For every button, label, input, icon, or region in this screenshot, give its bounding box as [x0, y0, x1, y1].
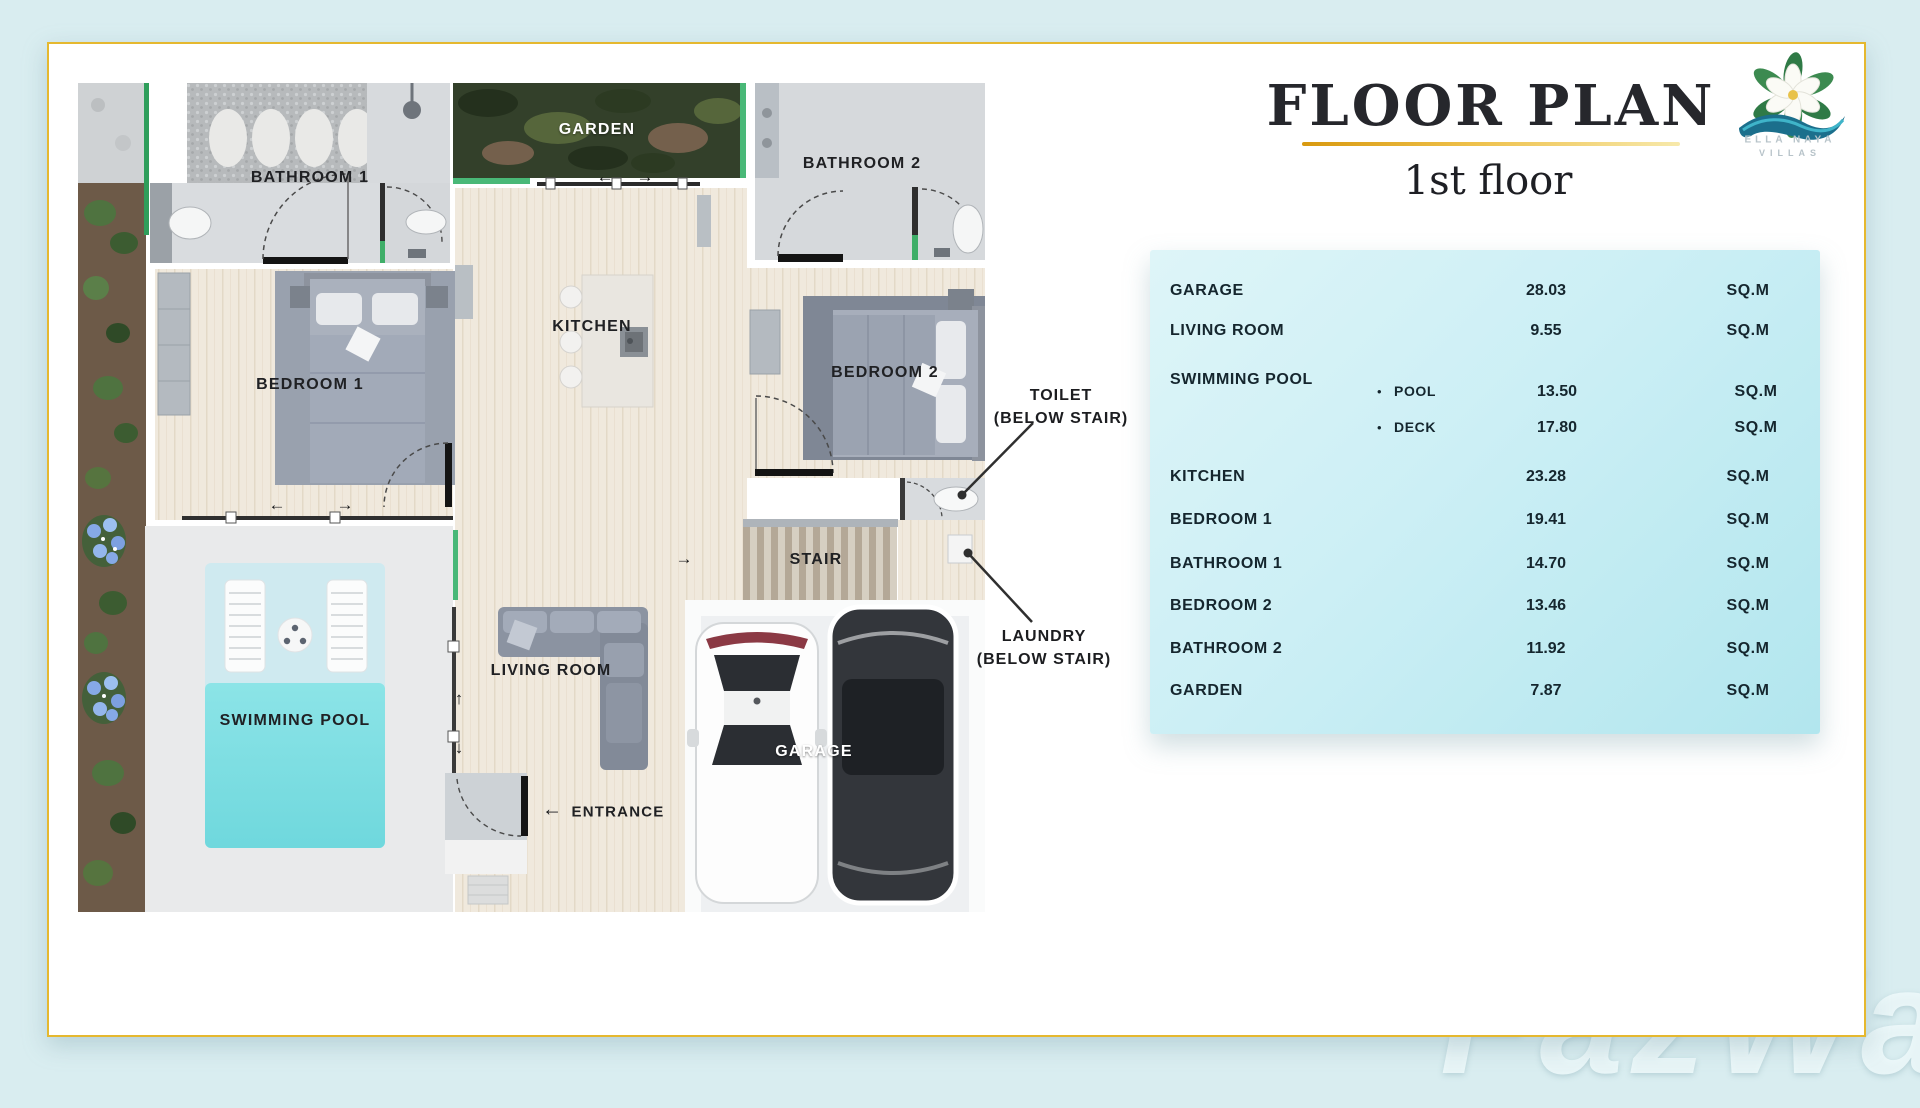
main-card: [47, 42, 1866, 1037]
